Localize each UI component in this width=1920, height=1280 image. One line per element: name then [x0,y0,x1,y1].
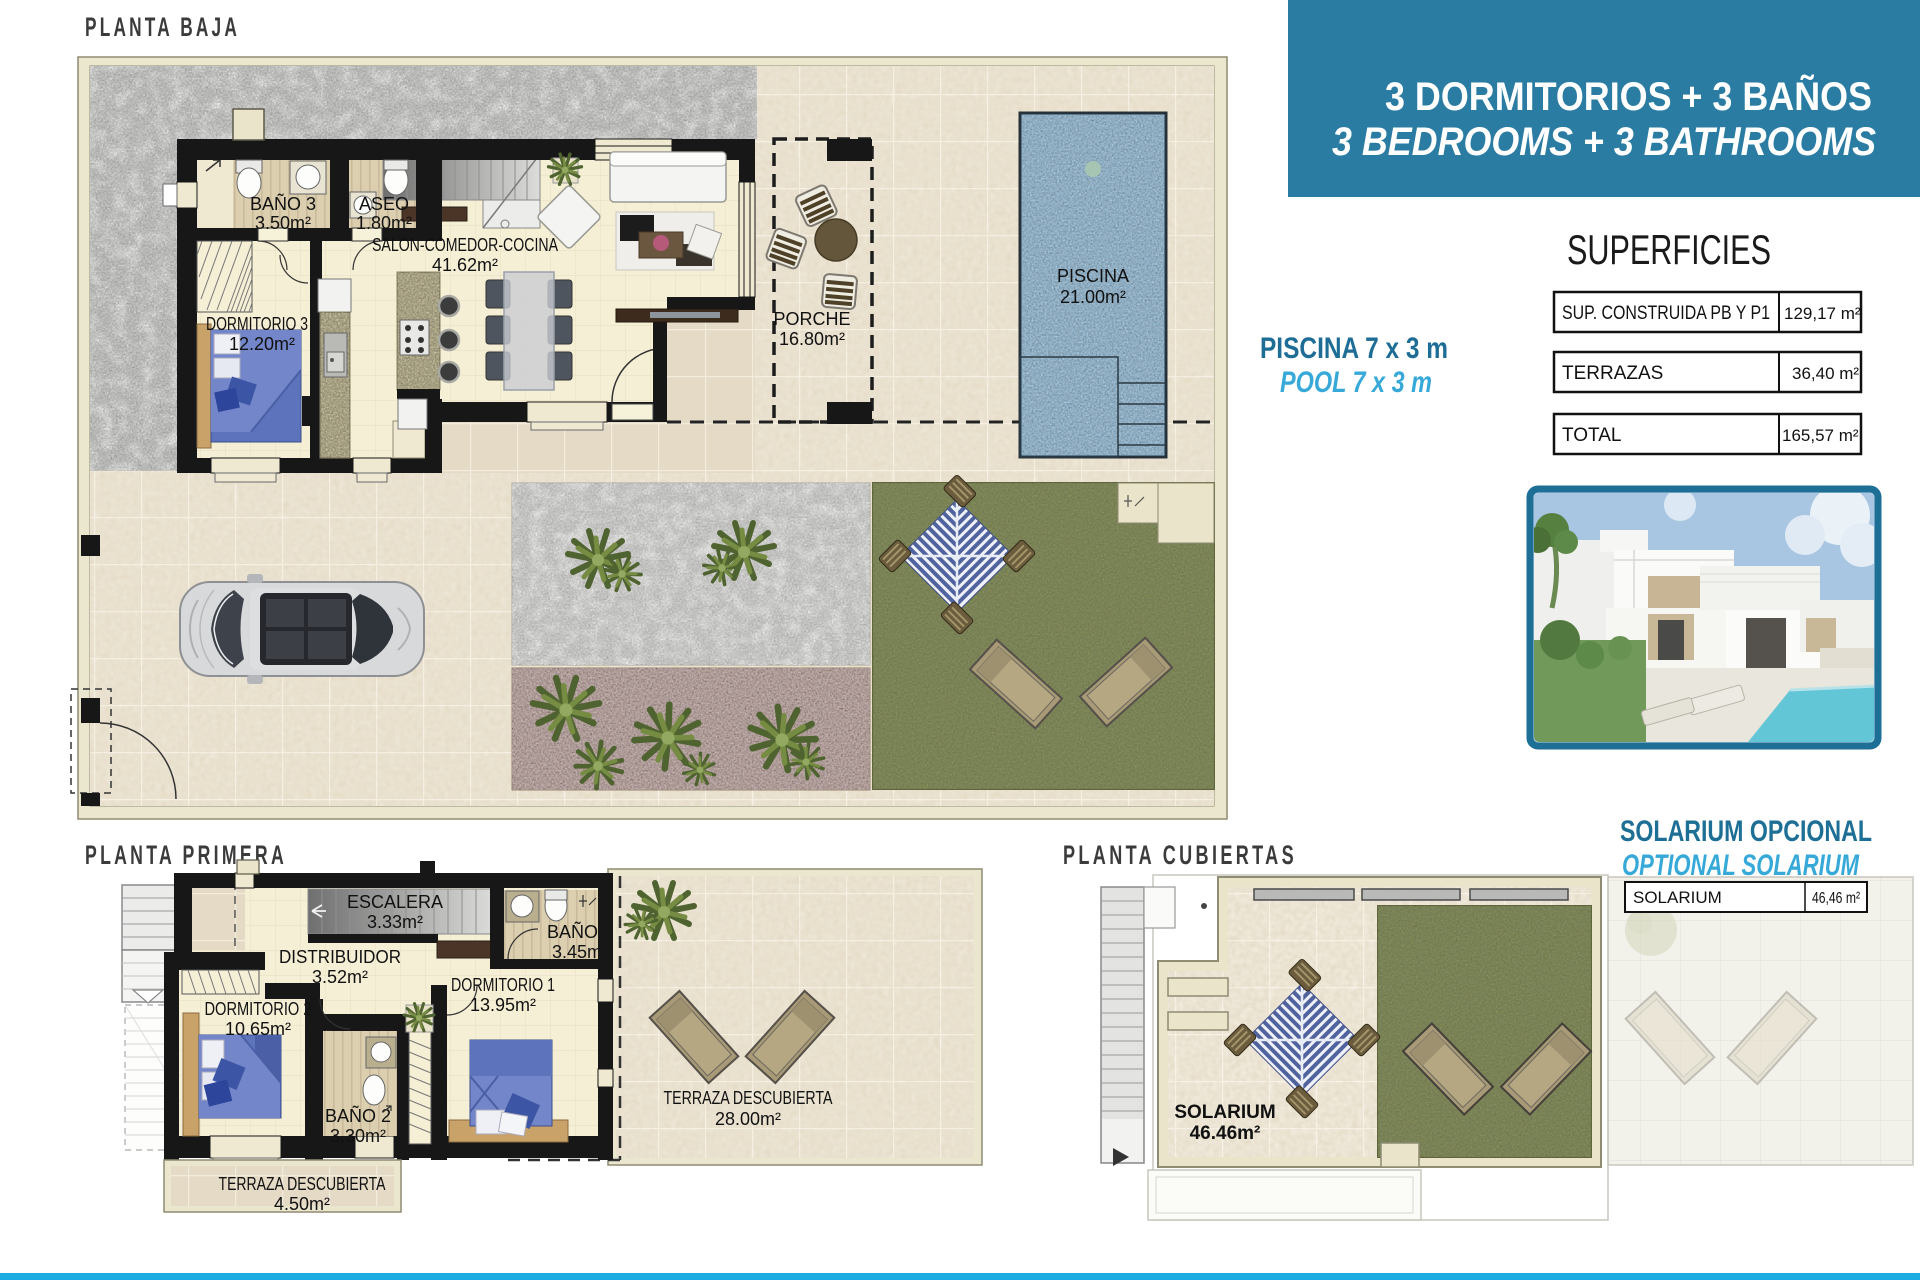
svg-text:3.52m²: 3.52m² [312,967,368,987]
svg-text:DORMITORIO 2: DORMITORIO 2 [205,999,312,1019]
svg-text:PISCINA 7 x 3 m: PISCINA 7 x 3 m [1260,332,1448,365]
svg-text:PISCINA: PISCINA [1057,266,1129,286]
svg-text:36,40 m²: 36,40 m² [1792,364,1859,383]
svg-text:SUPERFICIES: SUPERFICIES [1567,226,1771,273]
svg-text:3 DORMITORIOS + 3 BAÑOS: 3 DORMITORIOS + 3 BAÑOS [1385,73,1872,119]
svg-text:129,17 m²: 129,17 m² [1784,304,1861,323]
svg-text:3.33m²: 3.33m² [367,912,423,932]
svg-text:3.50m²: 3.50m² [255,213,311,233]
svg-text:46.46m²: 46.46m² [1190,1123,1261,1144]
svg-text:165,57 m²: 165,57 m² [1782,426,1859,445]
svg-text:SALON-COMEDOR-COCINA: SALON-COMEDOR-COCINA [372,235,558,255]
svg-text:PLANTA CUBIERTAS: PLANTA CUBIERTAS [1063,840,1297,870]
svg-text:4.50m²: 4.50m² [274,1194,330,1214]
svg-text:DORMITORIO 3: DORMITORIO 3 [206,314,308,334]
svg-text:POOL 7 x 3 m: POOL 7 x 3 m [1280,366,1432,399]
svg-text:BAÑO 3: BAÑO 3 [250,193,316,214]
svg-text:ESCALERA: ESCALERA [347,892,443,912]
svg-text:TERRAZA DESCUBIERTA: TERRAZA DESCUBIERTA [219,1174,386,1194]
svg-text:TOTAL: TOTAL [1562,425,1621,446]
svg-text:21.00m²: 21.00m² [1060,287,1126,307]
svg-text:13.95m²: 13.95m² [470,995,536,1015]
svg-text:SOLARIUM OPCIONAL: SOLARIUM OPCIONAL [1620,815,1872,848]
svg-text:SOLARIUM: SOLARIUM [1633,888,1722,907]
svg-text:BAÑO 2: BAÑO 2 [325,1105,391,1126]
svg-text:DORMITORIO 1: DORMITORIO 1 [451,975,555,995]
svg-text:46,46 m²: 46,46 m² [1812,890,1861,907]
svg-text:3.30m²: 3.30m² [330,1126,386,1146]
svg-text:1.80m²: 1.80m² [356,213,412,233]
svg-text:28.00m²: 28.00m² [715,1109,781,1129]
svg-text:PORCHE: PORCHE [773,309,850,329]
svg-text:PLANTA BAJA: PLANTA BAJA [85,12,240,42]
svg-text:TERRAZAS: TERRAZAS [1562,363,1663,384]
svg-text:3 BEDROOMS + 3 BATHROOMS: 3 BEDROOMS + 3 BATHROOMS [1332,120,1876,164]
svg-text:16.80m²: 16.80m² [779,329,845,349]
svg-text:SOLARIUM: SOLARIUM [1174,1102,1275,1123]
svg-text:12.20m²: 12.20m² [229,334,295,354]
svg-text:10.65m²: 10.65m² [225,1019,291,1039]
svg-text:SUP. CONSTRUIDA PB Y P1: SUP. CONSTRUIDA PB Y P1 [1562,303,1770,324]
svg-text:DISTRIBUIDOR: DISTRIBUIDOR [279,947,401,967]
svg-text:TERRAZA DESCUBIERTA: TERRAZA DESCUBIERTA [664,1088,833,1108]
svg-text:ASEO: ASEO [359,194,409,214]
svg-text:41.62m²: 41.62m² [432,255,498,275]
svg-text:OPTIONAL SOLARIUM: OPTIONAL SOLARIUM [1622,849,1860,882]
